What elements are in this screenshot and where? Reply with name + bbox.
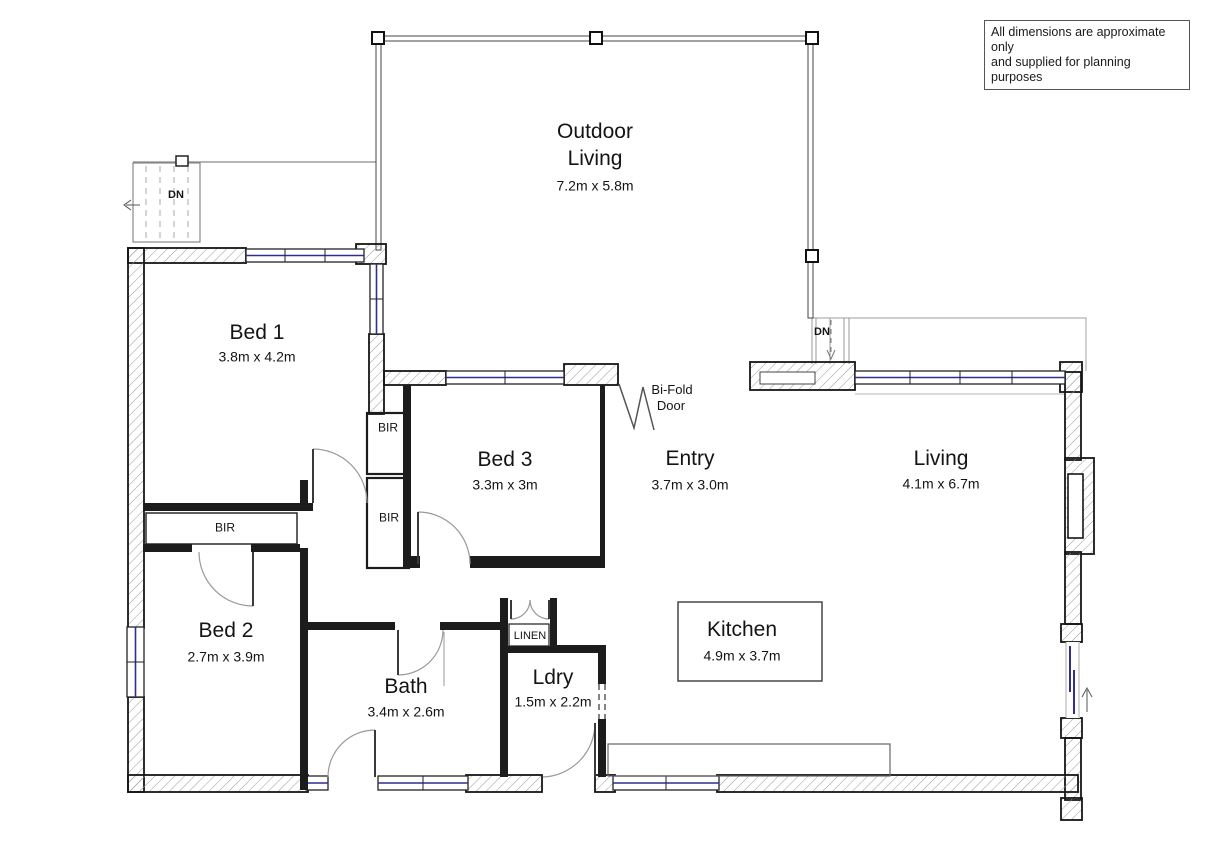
closet-label-bir-2: BIR [379, 512, 399, 525]
doors [199, 449, 595, 777]
bifold-door-label-2: Door [657, 399, 685, 413]
room-label-ldry: Ldry [533, 667, 574, 689]
post [806, 32, 818, 44]
slide-direction-arrow [1082, 688, 1092, 712]
room-label-kitchen: Kitchen [707, 619, 777, 641]
outdoor-living-walls [372, 32, 818, 318]
closet-label-linen: LINEN [514, 631, 546, 643]
kitchen-label-box [678, 602, 822, 681]
disclaimer-note: All dimensions are approximate only and … [984, 20, 1190, 90]
room-label-bath: Bath [384, 676, 427, 698]
room-dims-bed3: 3.3m x 3m [472, 478, 537, 493]
bifold-door-symbol [619, 384, 654, 430]
room-dims-bath: 3.4m x 2.6m [367, 705, 444, 720]
room-label-bed1: Bed 1 [230, 322, 285, 344]
room-label-entry: Entry [665, 448, 714, 470]
entry-wall-niche [760, 372, 815, 384]
room-label-bed3: Bed 3 [478, 449, 533, 471]
closet-label-bir-1: BIR [378, 422, 398, 435]
stairs-outdoor [812, 318, 849, 364]
room-dims-bed1: 3.8m x 4.2m [218, 350, 295, 365]
stairs-label-dn-1: DN [168, 190, 184, 202]
room-dims-bed2: 2.7m x 3.9m [187, 650, 264, 665]
room-dims-ldry: 1.5m x 2.2m [514, 695, 591, 710]
fireplace-recess [1068, 474, 1083, 538]
room-label-bed2: Bed 2 [199, 620, 254, 642]
room-label-outdoor-living-1: Outdoor [557, 121, 633, 143]
sliding-door [1066, 642, 1092, 718]
disclaimer-line1: All dimensions are approximate only [991, 25, 1165, 54]
kitchen-bench [608, 744, 890, 776]
post [372, 32, 384, 44]
post [590, 32, 602, 44]
room-dims-entry: 3.7m x 3.0m [651, 478, 728, 493]
stairs-label-dn-2: DN [814, 327, 830, 339]
stair-post [176, 156, 188, 166]
ldry-dashed-opening [599, 684, 605, 719]
room-dims-kitchen: 4.9m x 3.7m [703, 649, 780, 664]
room-label-living: Living [914, 448, 969, 470]
closet-label-bir-3: BIR [215, 522, 235, 535]
post [806, 250, 818, 262]
room-dims-outdoor-living: 7.2m x 5.8m [556, 179, 633, 194]
bifold-door-label-1: Bi-Fold [651, 383, 692, 397]
disclaimer-line2: and supplied for planning purposes [991, 55, 1131, 84]
floor-plan: Outdoor Living 7.2m x 5.8m Bed 1 3.8m x … [0, 0, 1212, 857]
stairs-top-left [124, 156, 200, 242]
room-label-outdoor-living-2: Living [568, 148, 623, 170]
room-dims-living: 4.1m x 6.7m [902, 477, 979, 492]
